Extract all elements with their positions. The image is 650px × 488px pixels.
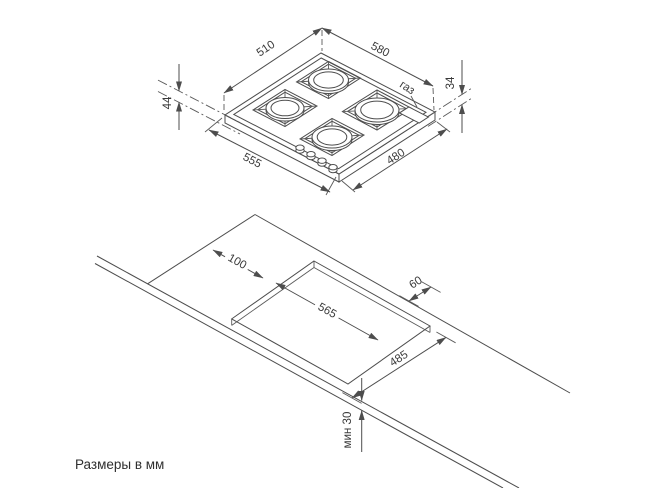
worktop-cutout-view: 100 565 60 485 [95,215,570,488]
diagram-canvas: 510 580 газ 44 [0,0,650,488]
dimension-100: 100 [213,250,263,278]
worktop-left-edge [148,215,255,284]
dimension-34: 34 [428,60,472,133]
worktop-back-edge [255,215,570,394]
hob-isometric-view: 510 580 газ 44 [158,28,472,195]
dim-580-label: 580 [369,40,392,60]
dimension-485: 485 [342,332,455,403]
dim-555-label: 555 [241,151,264,171]
dim-34-label: 34 [445,76,457,89]
cutout-opening [232,261,430,384]
dimension-60: 60 [399,275,440,307]
worktop-front-edge-top [97,256,519,488]
units-caption: Размеры в мм [75,457,164,472]
dim-min30-label: мин 30 [342,412,354,449]
dimension-565: 565 [276,283,378,340]
dim-44-label: 44 [162,96,174,109]
dim-510-label: 510 [255,39,278,60]
worktop-front-edge-bottom [95,264,503,488]
installation-diagram: 510 580 газ 44 [0,0,650,488]
dim-60-label: 60 [407,275,424,292]
dimension-min-30: мин 30 [342,378,362,452]
